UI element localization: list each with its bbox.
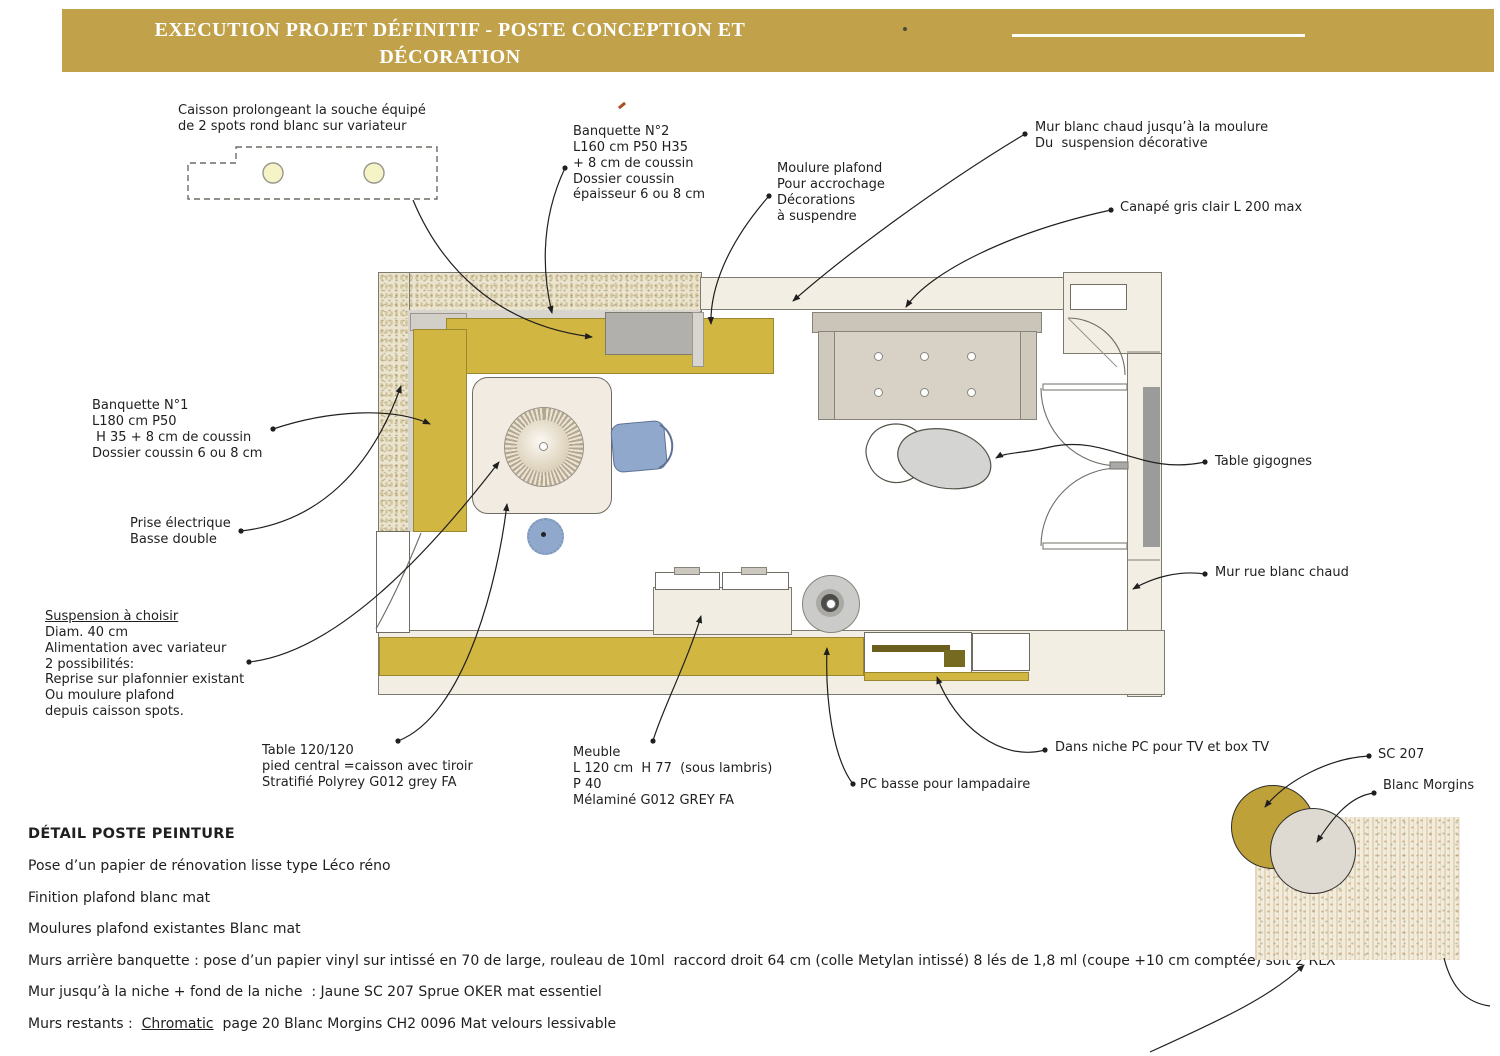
- annotation-mur-blanc-chaud-line: Mur blanc chaud jusqu’à la moulure: [1035, 120, 1268, 136]
- sofa-button: [874, 388, 883, 397]
- banquette-1-shape: [413, 329, 467, 532]
- sofa-back: [812, 312, 1042, 333]
- paint-detail-line: Mur jusqu’à la niche + fond de la niche …: [28, 984, 1268, 1000]
- annotation-moulure-plafond-line: Décorations: [777, 193, 885, 209]
- annotation-meuble-line: L 120 cm H 77 (sous lambris): [573, 761, 772, 777]
- meuble-handle-right: [741, 567, 767, 575]
- annotation-mur-blanc-chaud-line: Du suspension décorative: [1035, 136, 1268, 152]
- spot-icon: [263, 163, 283, 183]
- annotation-banquette-2: Banquette N°2L160 cm P50 H35+ 8 cm de co…: [573, 124, 705, 203]
- annotation-banquette-2-line: épaisseur 6 ou 8 cm: [573, 187, 705, 203]
- sofa-button: [920, 388, 929, 397]
- paint-details: DÉTAIL POSTE PEINTURE Pose d’un papier d…: [28, 826, 1268, 1047]
- annotation-canape: Canapé gris clair L 200 max: [1120, 200, 1302, 216]
- sofa-arm-left: [818, 331, 835, 420]
- paint-detail-text: Murs arrière banquette : pose d’un papie…: [28, 953, 1336, 969]
- sofa-button: [920, 352, 929, 361]
- annotation-sc-207: SC 207: [1378, 747, 1424, 763]
- nesting-tables: [866, 424, 991, 489]
- meuble-body: [653, 587, 792, 635]
- paint-detail-text: page 20 Blanc Morgins CH2 0096 Mat velou…: [214, 1016, 617, 1032]
- page-title-line1: EXECUTION PROJET DÉFINITIF - POSTE CONCE…: [120, 17, 780, 44]
- annotation-pc-basse-line: PC basse pour lampadaire: [860, 777, 1030, 793]
- annotation-table-gigognes: Table gigognes: [1215, 454, 1312, 470]
- annotation-banquette-1-line: Banquette N°1: [92, 398, 262, 414]
- annotation-banquette-1: Banquette N°1L180 cm P50 H 35 + 8 cm de …: [92, 398, 262, 461]
- paint-detail-line: Murs arrière banquette : pose d’un papie…: [28, 953, 1268, 969]
- annotation-meuble-line: Mélaminé G012 GREY FA: [573, 793, 772, 809]
- wall-bottom-yellow: [379, 637, 864, 676]
- header-dot: [903, 27, 907, 31]
- annotation-moulure-plafond-line: à suspendre: [777, 209, 885, 225]
- blue-stool: [527, 518, 564, 555]
- annotation-meuble-line: P 40: [573, 777, 772, 793]
- souche-side: [692, 312, 704, 367]
- annotation-niche-pc: Dans niche PC pour TV et box TV: [1055, 740, 1269, 756]
- annotation-table-120: Table 120/120pied central =caisson avec …: [262, 743, 473, 791]
- wall-left-door: [376, 531, 410, 633]
- paint-detail-line: Moulures plafond existantes Blanc mat: [28, 921, 1268, 937]
- annotation-mur-blanc-chaud: Mur blanc chaud jusqu’à la moulureDu sus…: [1035, 120, 1268, 152]
- pendant-light-center: [539, 442, 548, 451]
- annotation-suspension-line: Suspension à choisir: [45, 609, 244, 625]
- annotation-caisson: Caisson prolongeant la souche équipéde 2…: [178, 103, 426, 135]
- annotation-moulure-plafond-line: Moulure plafond: [777, 161, 885, 177]
- annotation-caisson-line: de 2 spots rond blanc sur variateur: [178, 119, 426, 135]
- annotation-table-120-line: pied central =caisson avec tiroir: [262, 759, 473, 775]
- blue-chair: [610, 420, 668, 474]
- spot-icon: [364, 163, 384, 183]
- red-tick-mark: [618, 102, 626, 109]
- annotation-suspension-line: 2 possibilités:: [45, 657, 244, 673]
- annotation-suspension-line: depuis caisson spots.: [45, 704, 244, 720]
- wall-exterior-top: [378, 272, 702, 312]
- wall-niche-strip: [1143, 387, 1160, 547]
- page-title: EXECUTION PROJET DÉFINITIF - POSTE CONCE…: [120, 17, 780, 71]
- paint-detail-text: Mur jusqu’à la niche + fond de la niche …: [28, 984, 602, 1000]
- annotation-table-120-line: Table 120/120: [262, 743, 473, 759]
- annotation-mur-rue-line: Mur rue blanc chaud: [1215, 565, 1349, 581]
- annotation-prise-electrique: Prise électriqueBasse double: [130, 516, 231, 548]
- paint-detail-text: Pose d’un papier de rénovation lisse typ…: [28, 858, 391, 874]
- page-title-line2: DÉCORATION: [120, 44, 780, 71]
- wall-exterior-left: [378, 272, 410, 534]
- annotation-niche-pc-line: Dans niche PC pour TV et box TV: [1055, 740, 1269, 756]
- tv-bar: [872, 645, 950, 652]
- annotation-prise-electrique-line: Prise électrique: [130, 516, 231, 532]
- yellow-under-niche: [864, 672, 1029, 681]
- souche-block: [605, 312, 694, 355]
- annotation-blanc-morgins: Blanc Morgins: [1383, 778, 1474, 794]
- paint-detail-link: Chromatic: [142, 1016, 214, 1032]
- sofa-button: [874, 352, 883, 361]
- annotation-caisson-line: Caisson prolongeant la souche équipé: [178, 103, 426, 119]
- annotation-pc-basse: PC basse pour lampadaire: [860, 777, 1030, 793]
- meuble-handle-left: [674, 567, 700, 575]
- annotation-prise-electrique-line: Basse double: [130, 532, 231, 548]
- annotation-table-120-line: Stratifié Polyrey G012 grey FA: [262, 775, 473, 791]
- annotation-moulure-plafond: Moulure plafondPour accrochageDécoration…: [777, 161, 885, 224]
- blanc-morgins-swatch: [1270, 808, 1356, 894]
- annotation-suspension-line: Reprise sur plafonnier existant: [45, 672, 244, 688]
- lampadaire-center: [826, 599, 836, 609]
- sofa-button: [967, 388, 976, 397]
- niche-2: [972, 633, 1030, 671]
- annotation-meuble-line: Meuble: [573, 745, 772, 761]
- tv-box: [944, 650, 965, 667]
- paint-detail-text: Murs restants :: [28, 1016, 142, 1032]
- paint-detail-text: Moulures plafond existantes Blanc mat: [28, 921, 301, 937]
- annotation-banquette-1-line: L180 cm P50: [92, 414, 262, 430]
- annotation-banquette-2-line: L160 cm P50 H35: [573, 140, 705, 156]
- annotation-banquette-2-line: + 8 cm de coussin: [573, 156, 705, 172]
- sofa-arm-right: [1020, 331, 1037, 420]
- paint-detail-line: Pose d’un papier de rénovation lisse typ…: [28, 858, 1268, 874]
- annotation-table-gigognes-line: Table gigognes: [1215, 454, 1312, 470]
- annotation-suspension: Suspension à choisirDiam. 40 cmAlimentat…: [45, 609, 244, 720]
- page: EXECUTION PROJET DÉFINITIF - POSTE CONCE…: [0, 0, 1500, 1056]
- cupboard-top-right: [1070, 284, 1127, 310]
- annotation-suspension-line: Ou moulure plafond: [45, 688, 244, 704]
- paint-detail-line: Finition plafond blanc mat: [28, 890, 1268, 906]
- annotation-suspension-line: Alimentation avec variateur: [45, 641, 244, 657]
- blue-stool-center: [541, 532, 546, 537]
- sofa-button: [967, 352, 976, 361]
- annotation-sc-207-line: SC 207: [1378, 747, 1424, 763]
- annotation-blanc-morgins-line: Blanc Morgins: [1383, 778, 1474, 794]
- sofa-seat: [818, 331, 1037, 420]
- paint-details-heading: DÉTAIL POSTE PEINTURE: [28, 826, 1268, 842]
- annotation-banquette-2-line: Banquette N°2: [573, 124, 705, 140]
- annotation-meuble: MeubleL 120 cm H 77 (sous lambris)P 40Mé…: [573, 745, 772, 808]
- annotation-mur-rue: Mur rue blanc chaud: [1215, 565, 1349, 581]
- annotation-banquette-1-line: H 35 + 8 cm de coussin: [92, 430, 262, 446]
- paint-detail-text: Finition plafond blanc mat: [28, 890, 210, 906]
- annotation-banquette-1-line: Dossier coussin 6 ou 8 cm: [92, 446, 262, 462]
- annotation-canape-line: Canapé gris clair L 200 max: [1120, 200, 1302, 216]
- annotation-suspension-line: Diam. 40 cm: [45, 625, 244, 641]
- paint-detail-line: Murs restants : Chromatic page 20 Blanc …: [28, 1016, 1268, 1032]
- annotation-moulure-plafond-line: Pour accrochage: [777, 177, 885, 193]
- caisson-sketch: [188, 147, 437, 199]
- header-rule: [1012, 34, 1305, 37]
- annotation-banquette-2-line: Dossier coussin: [573, 172, 705, 188]
- paint-details-lines: Pose d’un papier de rénovation lisse typ…: [28, 858, 1268, 1032]
